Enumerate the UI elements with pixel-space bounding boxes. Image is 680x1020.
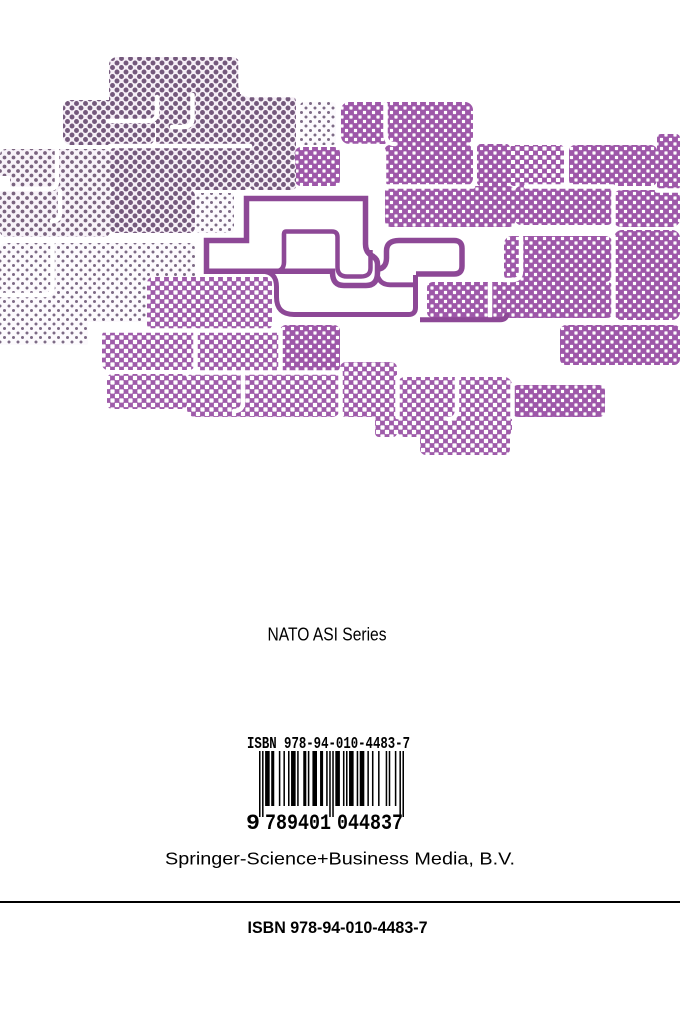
svg-text:Springer-Science+Business Medi: Springer-Science+Business Media, B.V. bbox=[165, 849, 515, 869]
svg-text:ISBN 978-94-010-4483-7: ISBN 978-94-010-4483-7 bbox=[248, 918, 428, 937]
svg-text:ISBN 978-94-010-4483-7: ISBN 978-94-010-4483-7 bbox=[247, 735, 410, 754]
svg-text:9789401044837: 9789401044837 bbox=[246, 810, 403, 834]
svg-text:NATO ASI Series: NATO ASI Series bbox=[268, 624, 387, 645]
